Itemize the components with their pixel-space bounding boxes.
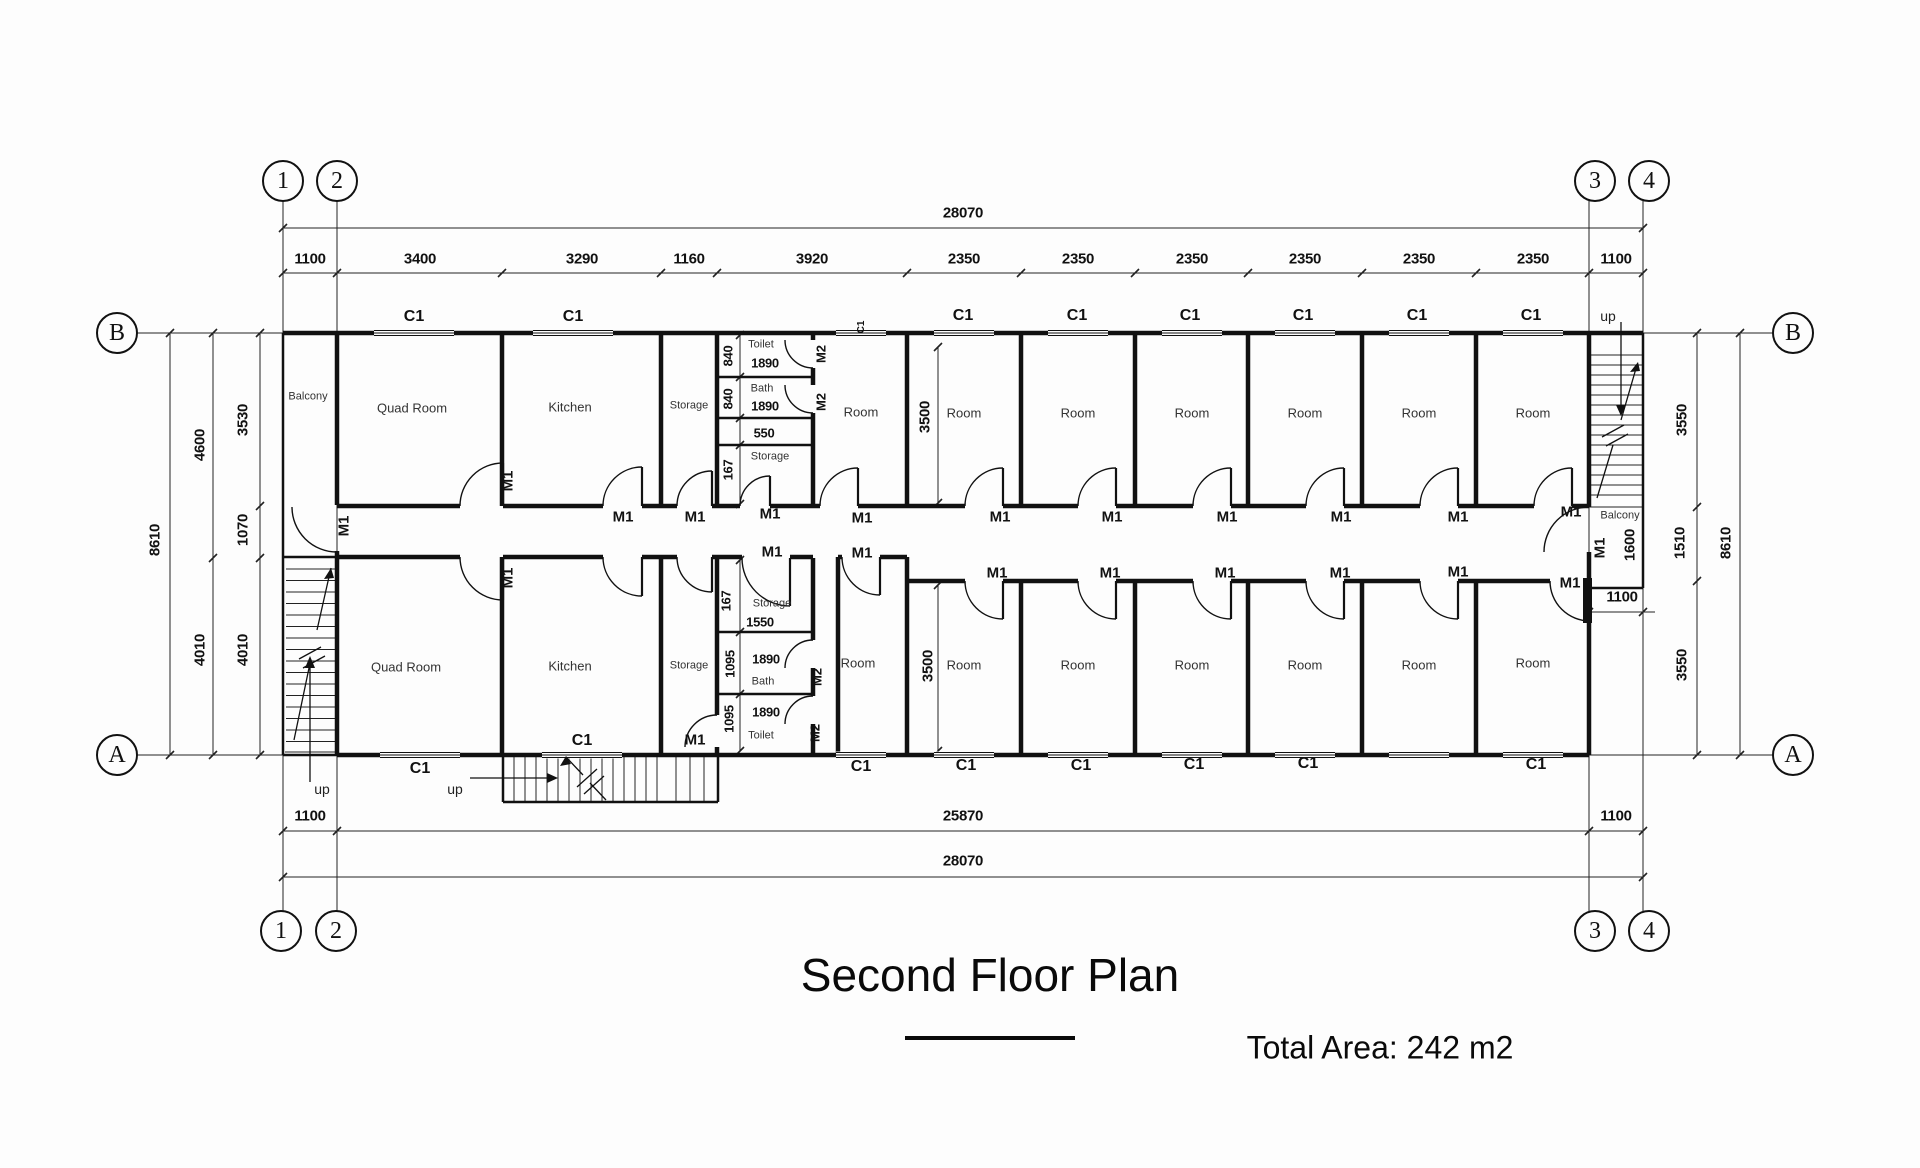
dimension-label: 3500 xyxy=(921,649,936,683)
door-tag-label: M1 xyxy=(1217,510,1238,525)
door-tag-label: M1 xyxy=(852,511,873,526)
window-tag-label: C1 xyxy=(1298,756,1318,772)
dimension-label: 1890 xyxy=(751,706,781,719)
windows-layer xyxy=(374,330,1563,759)
room-label: Balcony xyxy=(288,392,327,403)
door-tag-label: M1 xyxy=(1448,510,1469,525)
room-label: Storage xyxy=(751,452,790,463)
window-symbol xyxy=(1389,752,1449,759)
total-area-label: Total Area: 242 m2 xyxy=(1247,1030,1514,1067)
window-tag-label: C1 xyxy=(956,758,976,774)
room-label: Toilet xyxy=(748,340,774,351)
dimension-label: 3500 xyxy=(918,400,933,434)
dimension-label: 2350 xyxy=(1061,252,1095,267)
window-tag-label: C1 xyxy=(851,759,871,775)
room-label: Room xyxy=(1061,659,1096,672)
dimension-label: 1890 xyxy=(750,357,780,370)
dimension-label: 167 xyxy=(722,459,735,482)
grid-bubble-b: B xyxy=(96,312,138,354)
window-tag-label: C1 xyxy=(404,309,424,325)
dimension-label: 1095 xyxy=(724,649,737,679)
room-label: Room xyxy=(1402,407,1437,420)
room-label: Room xyxy=(1175,407,1210,420)
window-tag-label: C1 xyxy=(1526,757,1546,773)
window-tag-label: C1 xyxy=(563,309,583,325)
title-underline xyxy=(905,1036,1075,1040)
door-tag-label: M1 xyxy=(762,545,783,560)
window-symbol xyxy=(1048,330,1108,337)
dimension-label: 1070 xyxy=(236,513,251,547)
dimension-label: 28070 xyxy=(942,206,984,221)
window-tag-label: C1 xyxy=(1067,308,1087,324)
window-tag-label: C1 xyxy=(1071,758,1091,774)
dimension-label: 1890 xyxy=(751,653,781,666)
window-tag-label: C1 xyxy=(857,321,867,334)
stairs-layer xyxy=(286,355,1642,801)
room-label: Room xyxy=(1288,407,1323,420)
grid-bubble-1: 1 xyxy=(262,160,304,202)
window-tag-label: C1 xyxy=(1521,308,1541,324)
door-tag-label: M2 xyxy=(809,724,822,742)
window-tag-label: C1 xyxy=(953,308,973,324)
door-tag-label: M1 xyxy=(1102,510,1123,525)
dimension-label: 1890 xyxy=(750,400,780,413)
dimension-label: 3920 xyxy=(795,252,829,267)
door-tag-label: M1 xyxy=(1330,566,1351,581)
room-label: Room xyxy=(1402,659,1437,672)
dimension-label: 550 xyxy=(753,427,776,440)
room-label: Storage xyxy=(753,599,792,610)
dimension-label: 3400 xyxy=(403,252,437,267)
page-title: Second Floor Plan xyxy=(801,948,1179,1002)
window-tag-label: C1 xyxy=(1184,757,1204,773)
dimension-label: 1100 xyxy=(1605,590,1638,605)
dimension-label: 1550 xyxy=(745,616,775,629)
dimension-label: 2350 xyxy=(1516,252,1550,267)
room-label: Room xyxy=(841,657,876,670)
dimension-label: 4600 xyxy=(193,428,208,462)
grid-bubble-1: 1 xyxy=(260,910,302,952)
room-label: Kitchen xyxy=(548,660,591,673)
walls-layer xyxy=(283,333,1643,802)
grid-bubble-2: 2 xyxy=(316,160,358,202)
room-label: Kitchen xyxy=(548,401,591,414)
window-tag-label: C1 xyxy=(410,761,430,777)
dimension-label: 1160 xyxy=(672,252,705,267)
dimension-label: 1095 xyxy=(723,704,736,734)
door-tag-label: M1 xyxy=(1593,538,1608,559)
dimension-label: 8610 xyxy=(1719,526,1734,560)
room-label: Room xyxy=(1516,657,1551,670)
window-symbol xyxy=(533,330,613,337)
dimension-label: 4010 xyxy=(236,633,251,667)
grid-bubble-3: 3 xyxy=(1574,910,1616,952)
door-tag-label: M1 xyxy=(1560,576,1581,591)
door-tag-label: M1 xyxy=(852,546,873,561)
door-tag-label: M2 xyxy=(815,393,828,411)
window-symbol xyxy=(1389,330,1449,337)
room-label: Room xyxy=(947,407,982,420)
dimension-label: 1100 xyxy=(1599,809,1632,824)
stair-arrows xyxy=(294,322,1640,800)
door-tag-label: M1 xyxy=(987,566,1008,581)
door-tag-label: M1 xyxy=(1561,505,1582,520)
room-label: Room xyxy=(1061,407,1096,420)
window-tag-label: C1 xyxy=(1293,308,1313,324)
door-tag-label: M1 xyxy=(760,507,781,522)
dimension-label: 840 xyxy=(722,388,735,411)
door-tag-label: M1 xyxy=(685,510,706,525)
floor-plan-page: 2807011003400329011603920235023502350235… xyxy=(0,0,1920,1168)
window-tag-label: C1 xyxy=(1407,308,1427,324)
window-symbol xyxy=(1275,330,1335,337)
room-label: Room xyxy=(1288,659,1323,672)
door-tag-label: M1 xyxy=(685,733,706,748)
room-label: Room xyxy=(844,406,879,419)
dimension-label: 2350 xyxy=(1402,252,1436,267)
window-tag-label: C1 xyxy=(572,733,592,749)
door-leaf-panel xyxy=(1583,578,1592,623)
door-swing-arcs xyxy=(292,340,1590,747)
dimension-label: 1100 xyxy=(1599,252,1632,267)
dimension-label: 1100 xyxy=(293,252,326,267)
room-label: Room xyxy=(947,659,982,672)
dimension-label: 4010 xyxy=(193,633,208,667)
main-walls xyxy=(283,333,1643,755)
doors-layer xyxy=(292,340,1592,747)
door-tag-label: M1 xyxy=(501,568,516,589)
door-tag-label: M2 xyxy=(815,345,828,363)
dimension-label: 2350 xyxy=(1175,252,1209,267)
dimension-label: 25870 xyxy=(942,809,984,824)
door-tag-label: M2 xyxy=(811,668,824,686)
room-label: Bath xyxy=(751,384,774,395)
window-tag-label: C1 xyxy=(1180,308,1200,324)
window-symbol xyxy=(380,752,460,759)
grid-bubble-b: B xyxy=(1772,312,1814,354)
door-leaves xyxy=(503,463,1572,619)
room-label: Quad Room xyxy=(377,402,447,415)
door-tag-label: M1 xyxy=(1215,566,1236,581)
window-symbol xyxy=(934,330,994,337)
room-label: Room xyxy=(1175,659,1210,672)
stair-up-label: up xyxy=(314,782,330,796)
dimension-label: 3530 xyxy=(236,403,251,437)
stair-up-label: up xyxy=(1600,309,1616,323)
dimension-label: 28070 xyxy=(942,854,984,869)
room-label: Storage xyxy=(670,661,709,672)
dimension-label: 1100 xyxy=(293,809,326,824)
grid-bubble-4: 4 xyxy=(1628,160,1670,202)
window-symbol xyxy=(1162,330,1222,337)
door-tag-label: M1 xyxy=(1448,565,1469,580)
secondary-walls xyxy=(283,333,1643,802)
room-label: Room xyxy=(1516,407,1551,420)
window-symbol xyxy=(1503,330,1563,337)
grid-bubble-2: 2 xyxy=(315,910,357,952)
window-symbol xyxy=(374,330,454,337)
door-tag-label: M1 xyxy=(1331,510,1352,525)
window-symbol xyxy=(542,752,622,759)
door-tag-label: M1 xyxy=(337,516,352,537)
door-tag-label: M1 xyxy=(1100,566,1121,581)
dimension-label: 3550 xyxy=(1675,648,1690,682)
grid-bubble-a: A xyxy=(96,734,138,776)
room-label: Quad Room xyxy=(371,661,441,674)
door-tag-label: M1 xyxy=(990,510,1011,525)
dimension-label: 3550 xyxy=(1675,403,1690,437)
dimension-label: 8610 xyxy=(148,523,163,557)
door-tag-label: M1 xyxy=(613,510,634,525)
grid-bubble-4: 4 xyxy=(1628,910,1670,952)
room-label: Toilet xyxy=(748,731,774,742)
dimension-label: 2350 xyxy=(947,252,981,267)
stair-up-label: up xyxy=(447,782,463,796)
dimension-label: 2350 xyxy=(1288,252,1322,267)
dimension-label: 167 xyxy=(720,590,733,613)
room-label: Bath xyxy=(752,677,775,688)
dimension-label: 840 xyxy=(722,345,735,368)
dimension-label: 1510 xyxy=(1673,526,1688,560)
grid-bubble-3: 3 xyxy=(1574,160,1616,202)
dimension-label: 1600 xyxy=(1623,528,1638,562)
dimension-label: 3290 xyxy=(565,252,599,267)
door-tag-label: M1 xyxy=(501,471,516,492)
room-label: Balcony xyxy=(1600,511,1639,522)
grid-bubble-a: A xyxy=(1772,734,1814,776)
room-label: Storage xyxy=(670,401,709,412)
